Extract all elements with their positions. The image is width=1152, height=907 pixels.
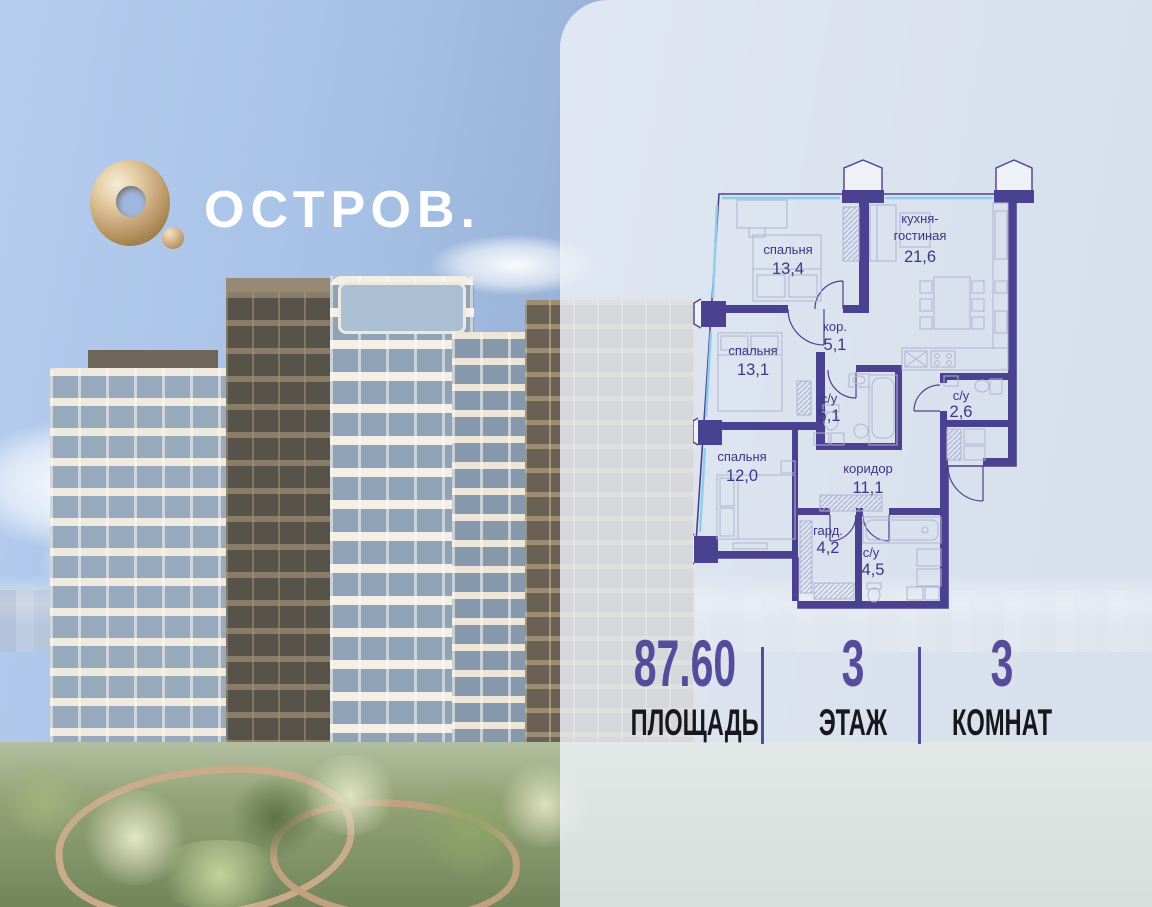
room-label-corridor: коридор [843, 461, 893, 476]
room-label-hall: кор. [823, 319, 847, 334]
room-label-bedroom2: спальня [728, 343, 777, 358]
logo-dot-icon [162, 227, 184, 249]
room-label-kitchen-2: гостиная [894, 228, 947, 243]
room-label-bath1: с/у [821, 391, 838, 406]
room-area-bath2: 2,6 [950, 403, 973, 421]
room-label-bath2: с/у [953, 388, 970, 403]
stat-area: 87.60 ПЛОЩАДЬ [600, 630, 770, 741]
tree [0, 760, 90, 840]
room-area-bath3: 4,5 [862, 561, 885, 579]
floor-plan: спальня 13,4 кухня- гостиная 21,6 кор. 5… [693, 155, 1038, 620]
room-area-bath1: 5,1 [818, 407, 841, 425]
stats-divider [761, 647, 764, 744]
room-area-bedroom3: 12,0 [726, 467, 758, 485]
stat-floor-label: ЭТАЖ [799, 704, 908, 741]
logo-torus-hole [116, 186, 146, 217]
tree-blossom [300, 755, 400, 835]
stat-floor: 3 ЭТАЖ [768, 630, 938, 741]
stat-floor-value: 3 [800, 630, 905, 696]
room-area-bedroom2: 13,1 [737, 361, 769, 379]
room-label-bath3: с/у [863, 545, 880, 560]
room-area-bedroom1: 13,4 [772, 260, 804, 278]
room-label-wardrobe: гард. [813, 523, 843, 538]
stat-rooms-label: КОМНАТ [948, 704, 1057, 741]
shrubs [150, 840, 290, 907]
stat-rooms: 3 КОМНАТ [917, 630, 1087, 741]
room-label-bedroom1: спальня [763, 242, 812, 257]
brand-name: ОСТРОВ. [204, 180, 481, 240]
logo-torus-icon [90, 160, 170, 246]
room-area-kitchen: 21,6 [904, 248, 936, 266]
stats-bar: 87.60 ПЛОЩАДЬ 3 ЭТАЖ 3 КОМНАТ [576, 630, 1152, 760]
glass-crown [338, 282, 466, 334]
room-area-wardrobe: 4,2 [817, 539, 840, 557]
room-label-bedroom3: спальня [717, 449, 766, 464]
listing-card[interactable]: ОСТРОВ. [0, 0, 1152, 907]
room-area-hall: 5,1 [824, 336, 847, 354]
stat-area-label: ПЛОЩАДЬ [631, 704, 740, 741]
room-label-kitchen-1: кухня- [901, 211, 938, 226]
room-area-corridor: 11,1 [853, 479, 884, 497]
roof-terrace [88, 350, 218, 370]
stat-area-value: 87.60 [632, 630, 737, 696]
stat-rooms-value: 3 [949, 630, 1054, 696]
